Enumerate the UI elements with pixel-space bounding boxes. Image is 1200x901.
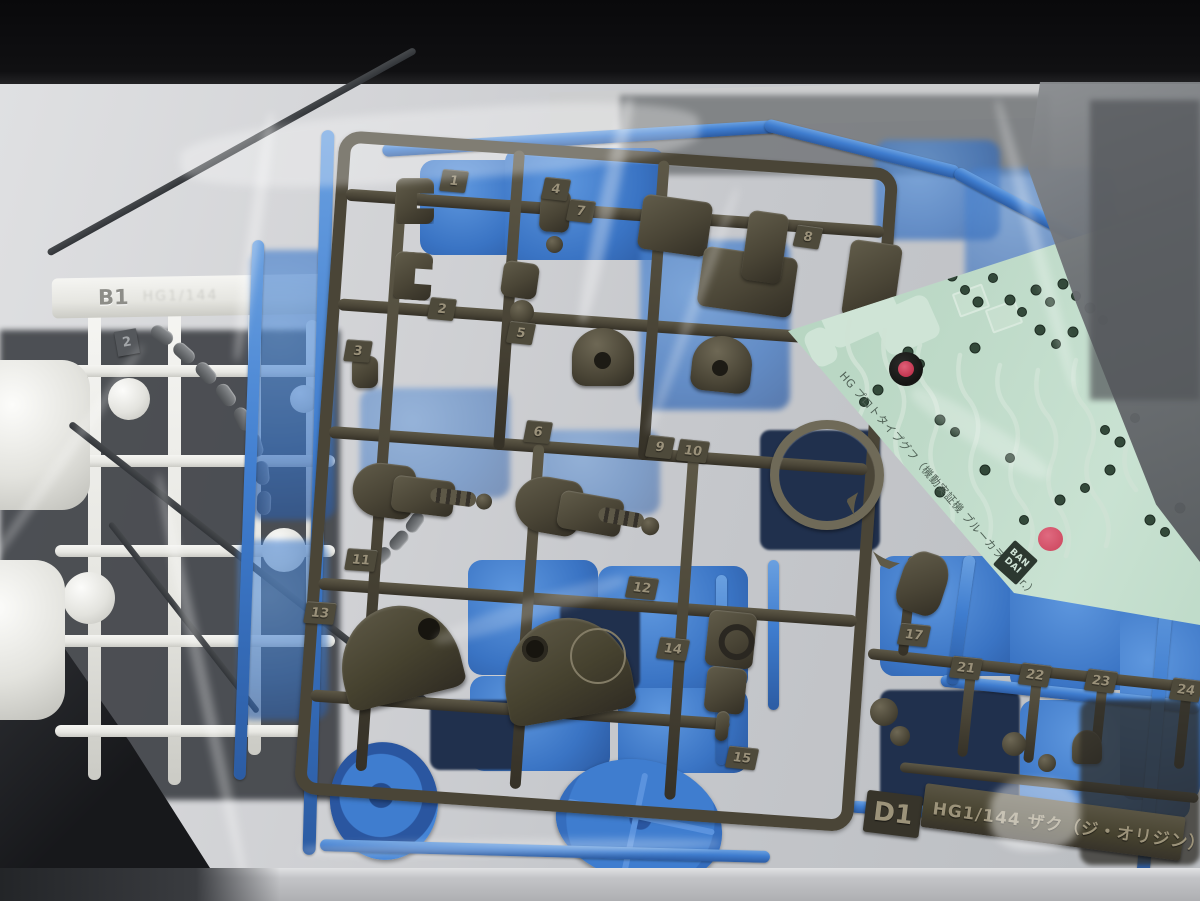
decal-red-dot-marking xyxy=(1038,527,1063,551)
part-number: 22 xyxy=(1025,668,1046,683)
part-number-tag: 24 xyxy=(1169,677,1200,702)
photo-frame: B1 HG1/144 2 xyxy=(0,0,1200,901)
part-number-tag: 14 xyxy=(656,637,690,662)
olive-dome-hole xyxy=(594,352,611,369)
part-number: 8 xyxy=(802,230,814,244)
part-number-tag: 11 xyxy=(344,548,378,572)
decal-red-dot-inner xyxy=(898,361,914,377)
part-number-tag: 2 xyxy=(427,297,457,321)
part-number-tag: 3 xyxy=(343,339,373,363)
olive-block-part xyxy=(500,260,541,301)
part-number-tag: 13 xyxy=(303,601,337,625)
olive-ball-joint-part xyxy=(1002,732,1026,756)
part-number: 10 xyxy=(683,444,704,459)
part-number-tag: 4 xyxy=(541,177,571,201)
part-number-tag: 12 xyxy=(625,576,659,601)
bag-glare-on-plate xyxy=(990,780,1080,850)
runner-id-tag: D1 xyxy=(863,790,924,839)
olive-ball-joint-part xyxy=(890,726,910,746)
part-number: 4 xyxy=(550,182,562,196)
part-number: 3 xyxy=(352,344,363,358)
part-number: 12 xyxy=(632,581,653,596)
part-number: 24 xyxy=(1176,683,1197,698)
part-number: 5 xyxy=(515,326,527,340)
bracket-stem xyxy=(714,710,730,741)
olive-dome-hole xyxy=(712,360,728,376)
part-number-tag: 21 xyxy=(949,656,983,681)
part-number: 15 xyxy=(732,751,753,766)
olive-shoulder-armor-hole xyxy=(522,636,548,662)
olive-ball-part xyxy=(546,236,563,253)
part-number: 14 xyxy=(663,642,684,657)
part-number: 6 xyxy=(532,425,544,439)
olive-ball-joint-part xyxy=(1038,754,1056,772)
part-number: 9 xyxy=(654,440,666,454)
weapon-muzzle xyxy=(475,493,493,511)
part-number: 2 xyxy=(436,302,448,316)
part-number-tag: 17 xyxy=(897,623,931,648)
white-ball-part xyxy=(63,572,115,624)
part-number-tag: 5 xyxy=(506,321,536,345)
part-number-tag: 8 xyxy=(792,224,823,249)
white-runner-rail xyxy=(55,725,315,737)
white-runner-molded-text: HG1/144 xyxy=(142,288,218,305)
part-number: 23 xyxy=(1091,674,1112,689)
part-number-tag: 9 xyxy=(645,435,675,459)
bag-fold-dark-streak xyxy=(1090,100,1200,400)
part-number-tag: 22 xyxy=(1018,662,1053,687)
olive-shoulder-armor-ring xyxy=(570,628,626,684)
part-number-tag: 23 xyxy=(1084,668,1119,693)
part-number: 7 xyxy=(575,204,587,218)
gray-part-tag-label: 2 xyxy=(121,334,133,350)
part-number-tag: 10 xyxy=(676,439,710,464)
part-number-tag: 15 xyxy=(725,746,759,771)
bracket-mid xyxy=(703,665,748,715)
runner-id-label: D1 xyxy=(871,797,914,832)
olive-bracket-part xyxy=(688,608,779,745)
part-number: 17 xyxy=(904,628,925,643)
part-number: 13 xyxy=(310,606,330,620)
white-runner-tag-label: B1 xyxy=(98,285,129,310)
part-number: 11 xyxy=(351,553,371,567)
part-number: 21 xyxy=(956,661,977,676)
part-number-tag: 7 xyxy=(566,199,596,223)
part-number-tag: 6 xyxy=(523,420,553,444)
black-backdrop xyxy=(0,0,1200,84)
olive-gun-part xyxy=(637,193,714,257)
white-part-large xyxy=(0,560,65,720)
table-surface-bottom-dark xyxy=(0,868,280,901)
olive-ball-joint-part xyxy=(870,698,898,726)
